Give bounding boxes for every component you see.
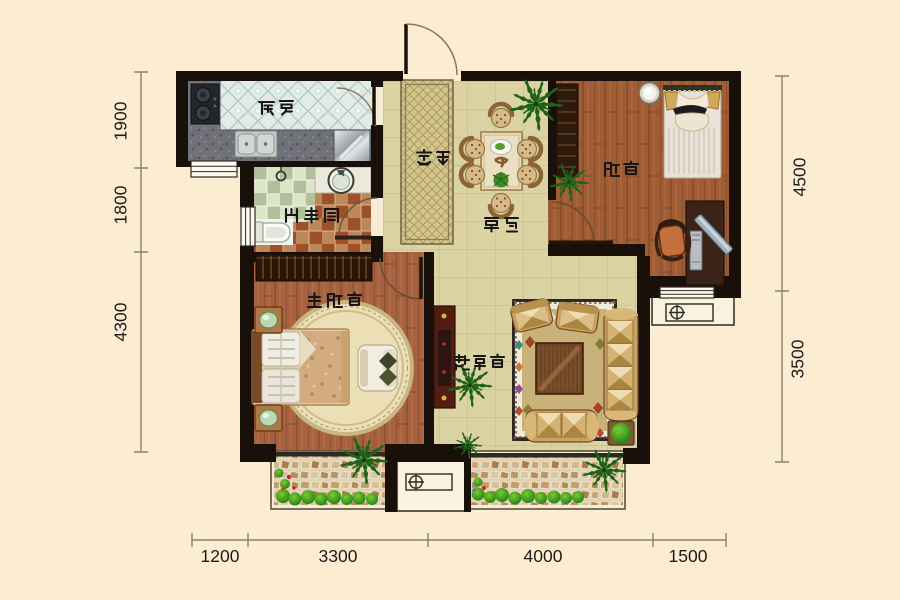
svg-text:1200: 1200 <box>201 546 240 566</box>
svg-text:4000: 4000 <box>524 546 563 566</box>
svg-text:4300: 4300 <box>111 302 131 341</box>
svg-text:3500: 3500 <box>788 339 808 378</box>
svg-text:4500: 4500 <box>790 157 810 196</box>
svg-text:1800: 1800 <box>111 185 131 224</box>
svg-text:1500: 1500 <box>669 546 708 566</box>
svg-text:1900: 1900 <box>111 101 131 140</box>
svg-text:3300: 3300 <box>319 546 358 566</box>
